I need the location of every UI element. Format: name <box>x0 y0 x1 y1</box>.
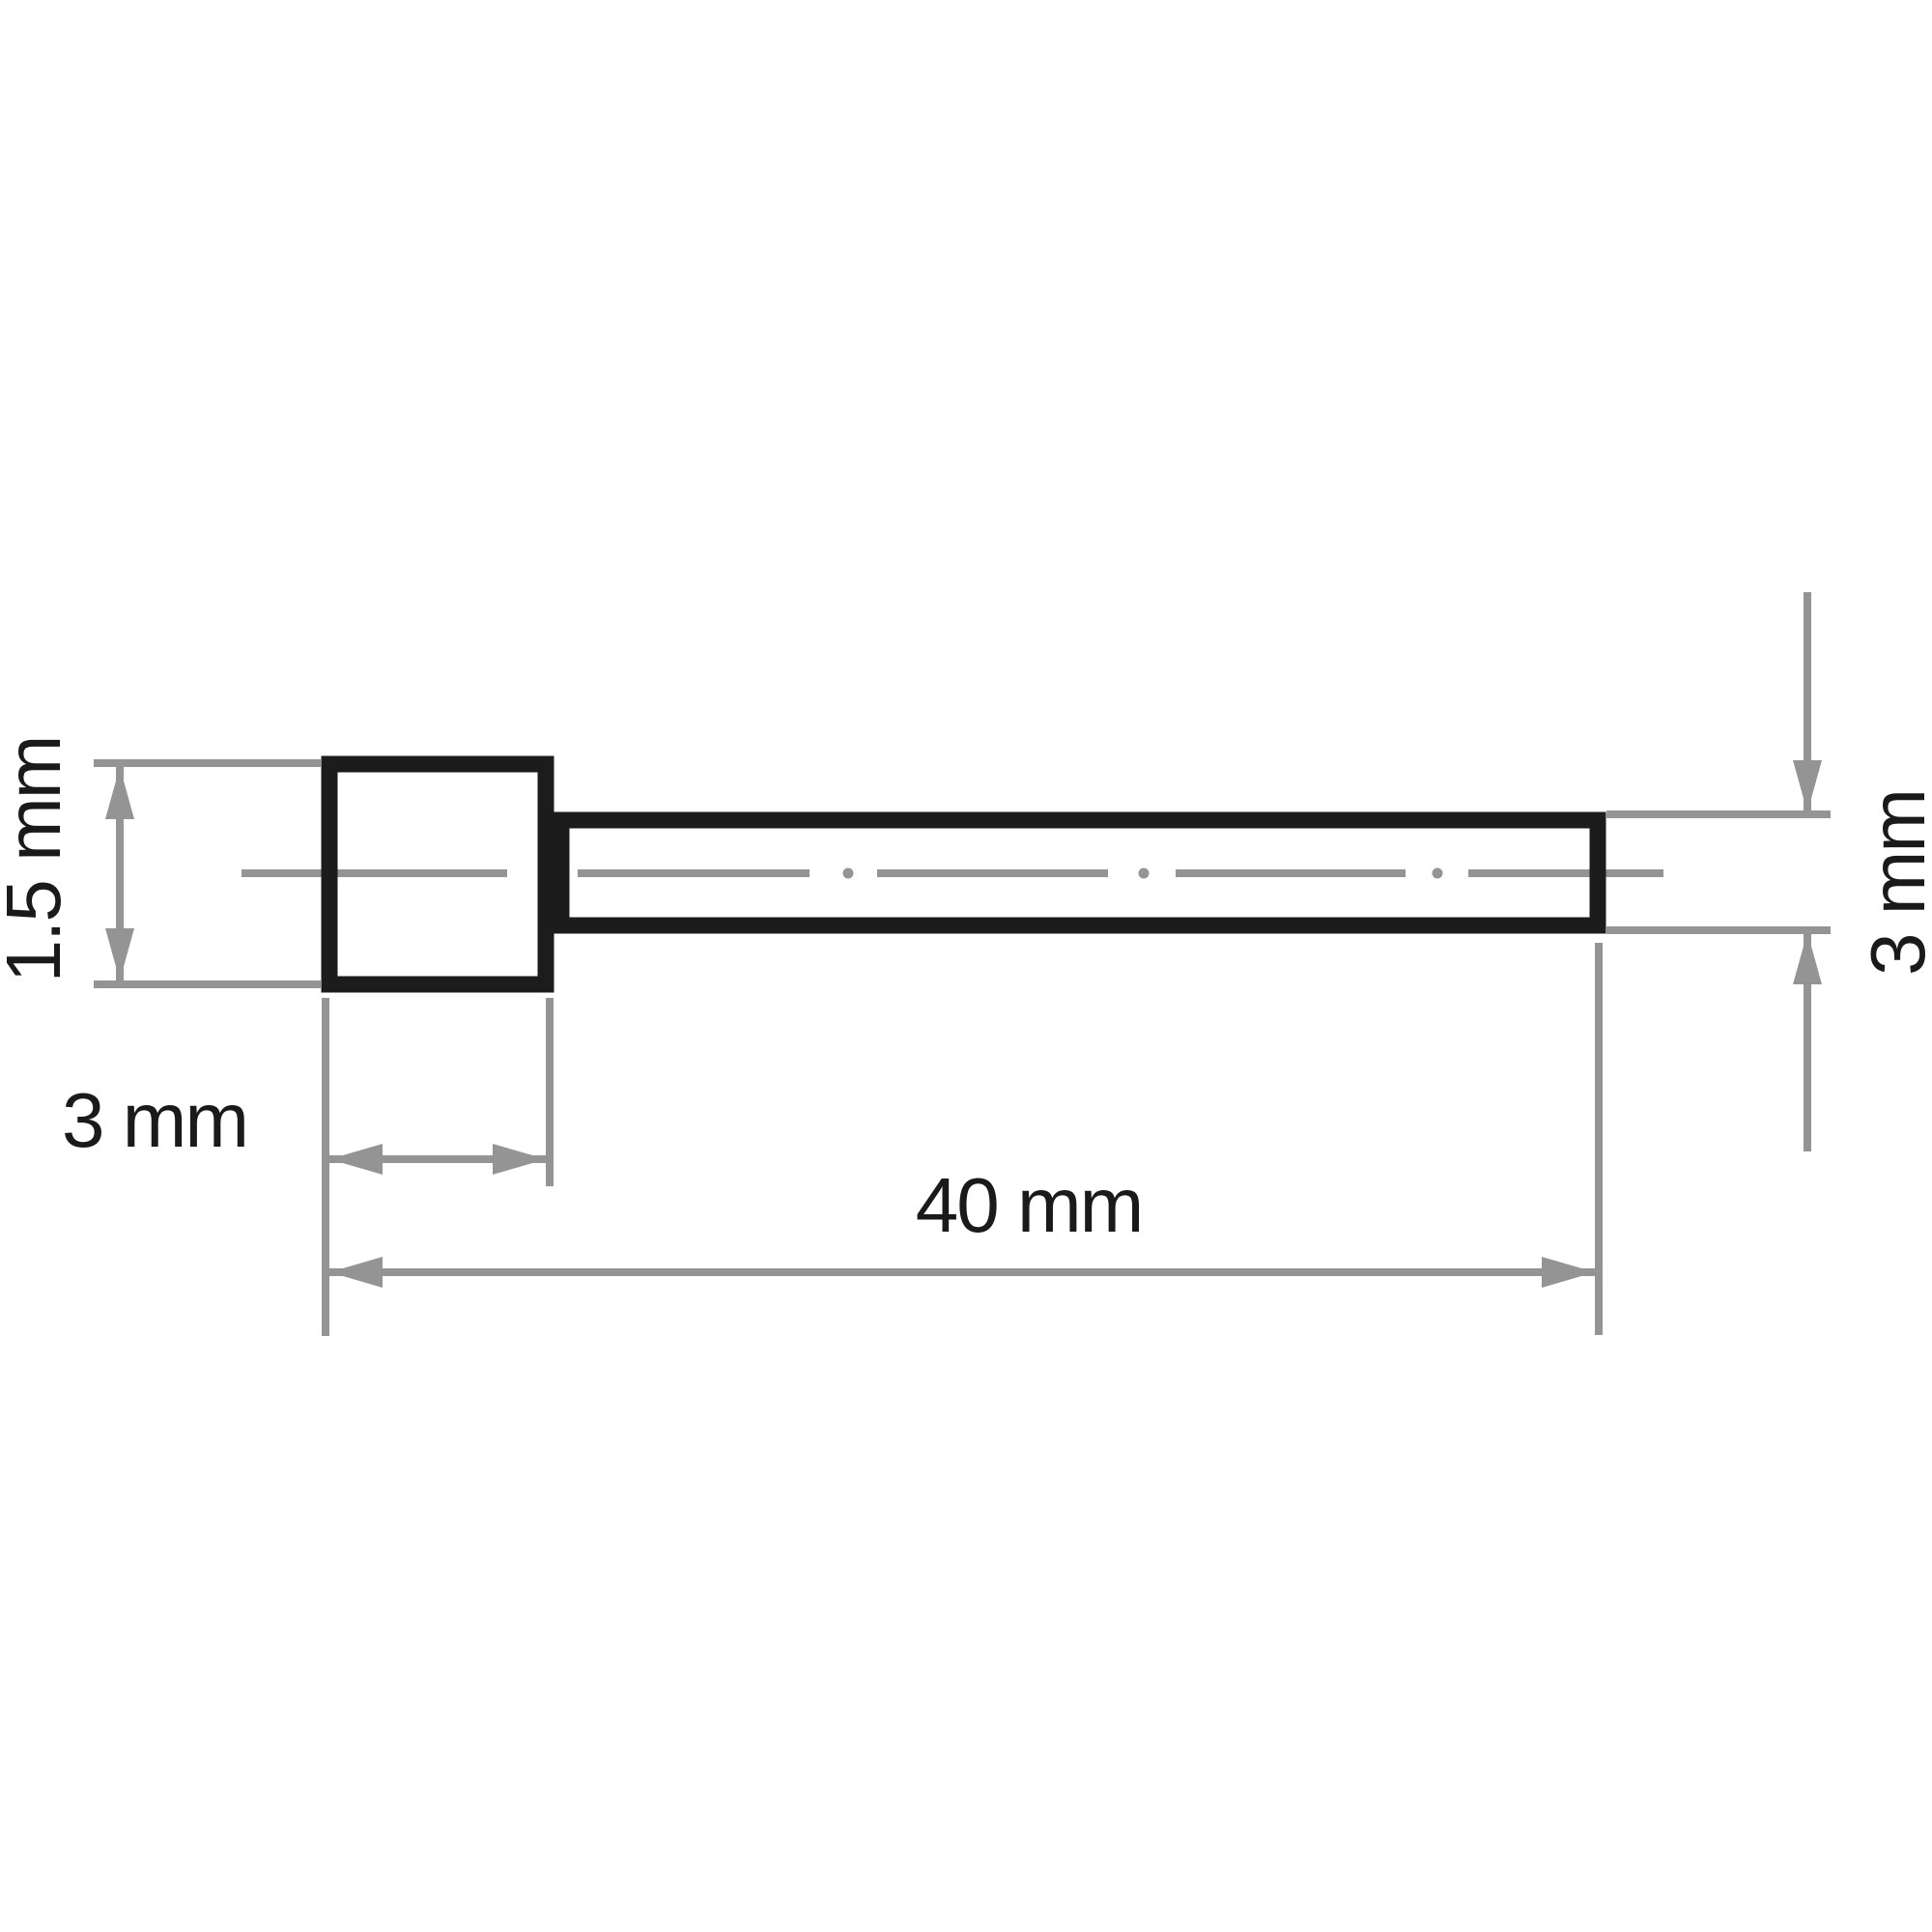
arrowhead-left <box>329 1257 383 1288</box>
arrowhead-right <box>493 1144 546 1175</box>
arrowhead-down <box>1793 760 1822 812</box>
label-shank-length: 40 mm <box>916 1162 1143 1248</box>
arrowhead-right <box>1542 1257 1595 1288</box>
arrowhead-left <box>329 1144 383 1175</box>
arrowhead-down <box>105 928 134 980</box>
arrowhead-up <box>1793 932 1822 984</box>
centerline-dot <box>843 868 854 879</box>
label-head-height: 1.5 mm <box>0 737 76 983</box>
label-shank-diameter: 3 mm <box>1855 790 1932 976</box>
arrowhead-up <box>105 767 134 819</box>
technical-drawing: 1.5 mm 3 mm 40 mm 3 mm <box>0 0 1932 1932</box>
centerline-dot <box>1433 868 1443 879</box>
label-head-width: 3 mm <box>62 1077 247 1163</box>
centerline-dot <box>1139 868 1150 879</box>
